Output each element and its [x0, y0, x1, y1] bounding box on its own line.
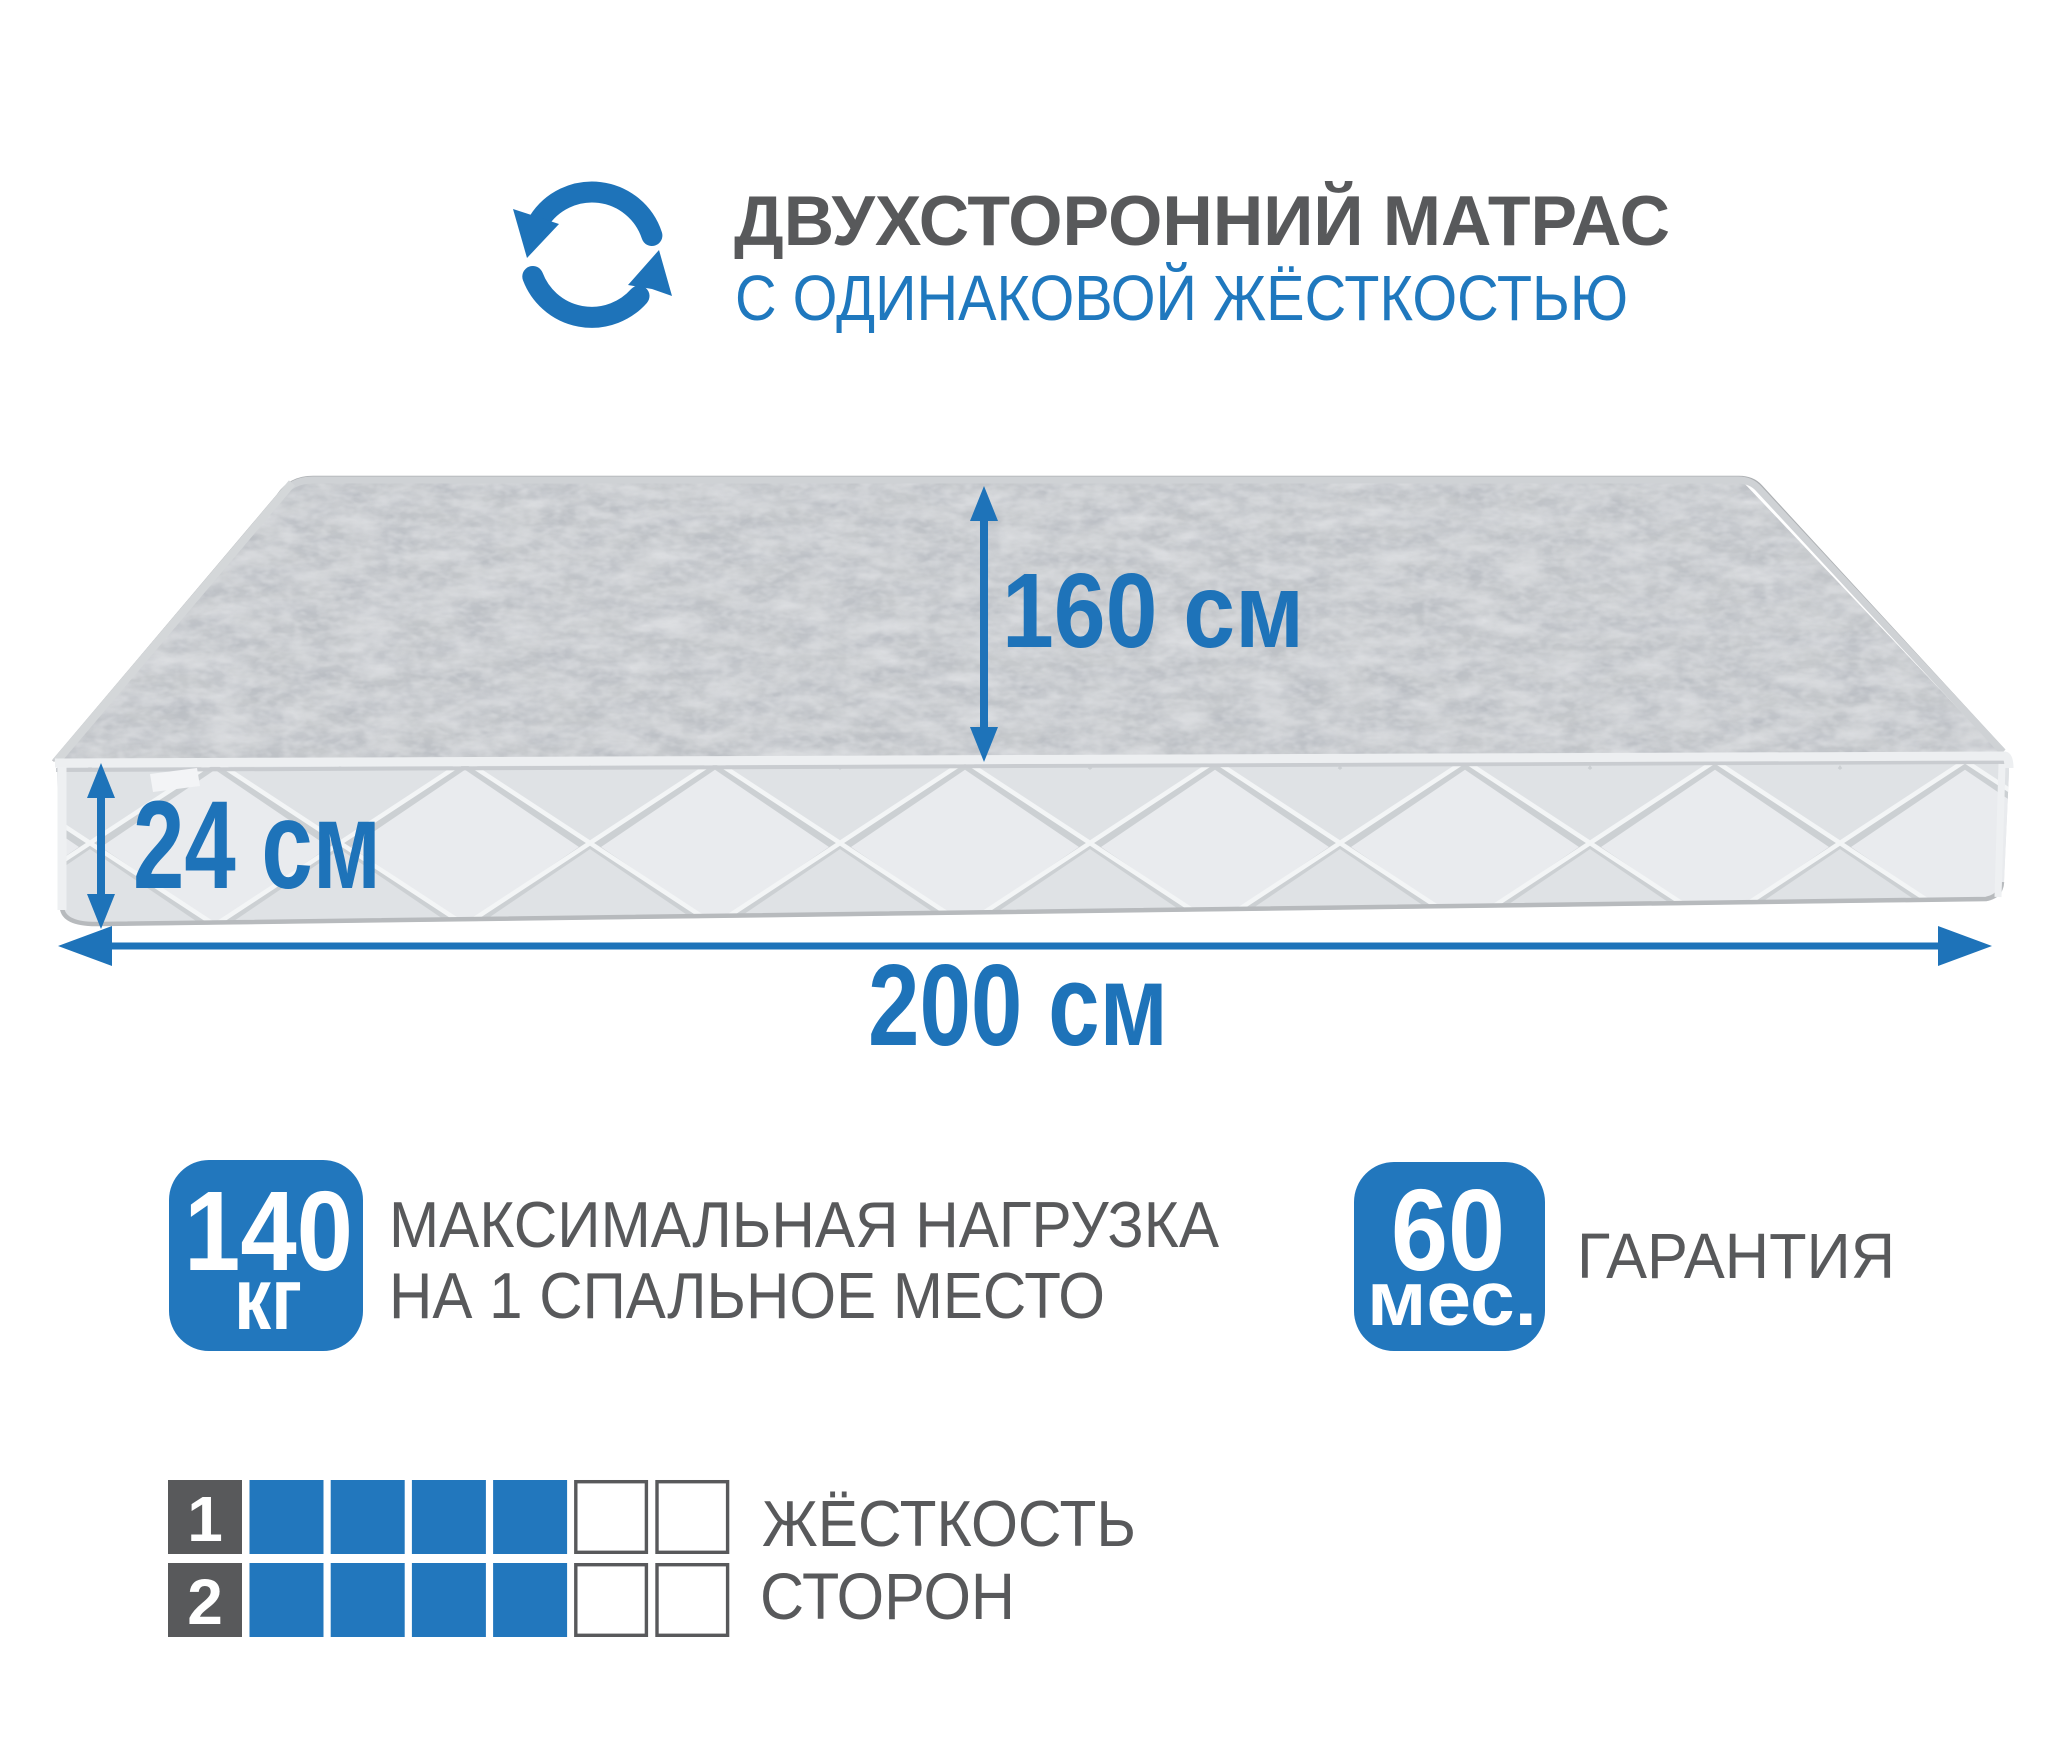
svg-text:ДВУХСТОРОННИЙ МАТРАС: ДВУХСТОРОННИЙ МАТРАС — [734, 181, 1670, 260]
svg-text:НА 1 СПАЛЬНОЕ МЕСТО: НА 1 СПАЛЬНОЕ МЕСТО — [389, 1259, 1105, 1332]
svg-text:ГАРАНТИЯ: ГАРАНТИЯ — [1577, 1220, 1895, 1292]
svg-text:МАКСИМАЛЬНАЯ НАГРУЗКА: МАКСИМАЛЬНАЯ НАГРУЗКА — [389, 1188, 1220, 1261]
svg-text:мес.: мес. — [1367, 1256, 1537, 1342]
svg-text:24 см: 24 см — [133, 776, 381, 915]
svg-text:200 см: 200 см — [868, 940, 1168, 1070]
svg-text:2: 2 — [187, 1566, 223, 1638]
svg-text:С ОДИНАКОВОЙ ЖЁСТКОСТЬЮ: С ОДИНАКОВОЙ ЖЁСТКОСТЬЮ — [735, 261, 1628, 334]
svg-text:СТОРОН: СТОРОН — [760, 1559, 1015, 1633]
svg-text:1: 1 — [187, 1483, 223, 1555]
svg-text:160 см: 160 см — [1002, 552, 1304, 670]
svg-text:ЖЁСТКОСТЬ: ЖЁСТКОСТЬ — [762, 1487, 1136, 1560]
svg-text:кг: кг — [234, 1249, 302, 1348]
